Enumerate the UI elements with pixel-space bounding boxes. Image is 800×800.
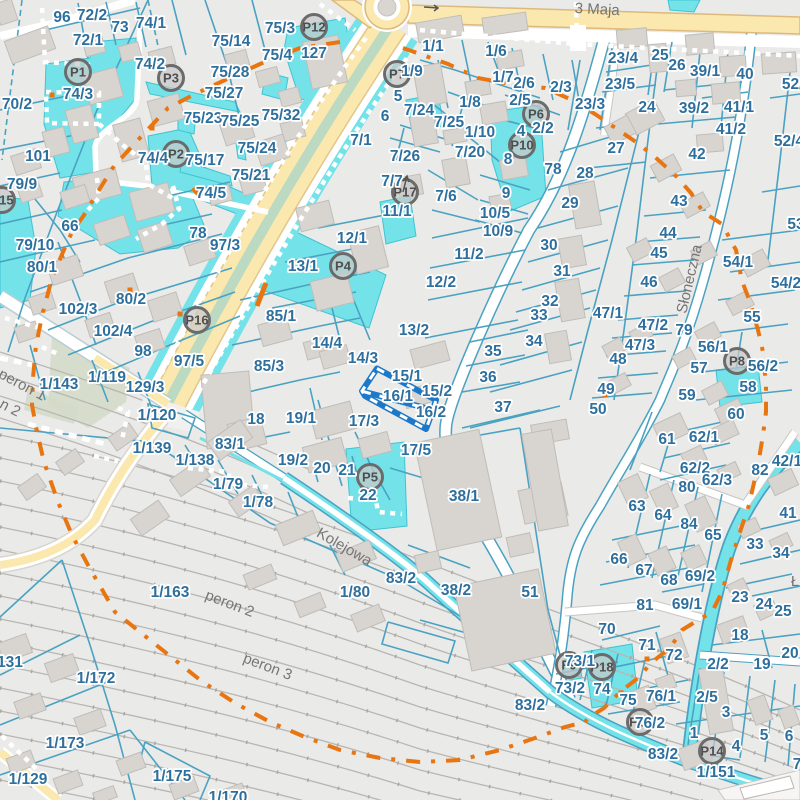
svg-text:12/2: 12/2 bbox=[426, 274, 456, 291]
svg-text:1/139: 1/139 bbox=[133, 440, 172, 457]
svg-text:74/5: 74/5 bbox=[196, 185, 227, 202]
svg-text:40: 40 bbox=[736, 66, 753, 83]
svg-text:34: 34 bbox=[772, 545, 790, 562]
svg-text:76/1: 76/1 bbox=[646, 688, 677, 705]
svg-text:1/78: 1/78 bbox=[243, 494, 274, 511]
svg-text:P4: P4 bbox=[335, 259, 352, 274]
svg-text:69/2: 69/2 bbox=[685, 568, 715, 585]
svg-text:74: 74 bbox=[593, 681, 611, 698]
svg-text:75/4: 75/4 bbox=[262, 47, 293, 64]
svg-text:24: 24 bbox=[638, 99, 656, 116]
svg-text:72/2: 72/2 bbox=[77, 7, 107, 24]
svg-text:1/80: 1/80 bbox=[340, 584, 370, 601]
svg-text:14/4: 14/4 bbox=[312, 335, 343, 352]
svg-text:62/1: 62/1 bbox=[689, 429, 720, 446]
svg-text:27: 27 bbox=[607, 140, 624, 157]
svg-text:10/5: 10/5 bbox=[480, 205, 511, 222]
svg-text:61: 61 bbox=[658, 431, 676, 448]
svg-text:59: 59 bbox=[678, 387, 696, 404]
svg-text:13/1: 13/1 bbox=[288, 258, 319, 275]
svg-text:84: 84 bbox=[680, 516, 698, 533]
svg-text:71: 71 bbox=[638, 637, 656, 654]
svg-text:75/28: 75/28 bbox=[211, 64, 250, 81]
svg-text:7/6: 7/6 bbox=[435, 188, 457, 205]
svg-text:75/23: 75/23 bbox=[184, 110, 223, 127]
svg-text:83/2: 83/2 bbox=[648, 746, 678, 763]
svg-text:7/25: 7/25 bbox=[434, 114, 465, 131]
svg-text:48: 48 bbox=[609, 351, 627, 368]
svg-text:74/2: 74/2 bbox=[135, 56, 165, 73]
svg-text:P15: P15 bbox=[0, 193, 14, 208]
svg-text:9: 9 bbox=[502, 185, 511, 202]
svg-text:3: 3 bbox=[722, 704, 731, 721]
svg-text:2/5: 2/5 bbox=[509, 92, 531, 109]
svg-text:6: 6 bbox=[381, 108, 390, 125]
svg-text:97/3: 97/3 bbox=[210, 237, 241, 254]
svg-text:1/79: 1/79 bbox=[213, 476, 244, 493]
svg-text:38/2: 38/2 bbox=[441, 582, 471, 599]
svg-text:75/14: 75/14 bbox=[212, 33, 251, 50]
svg-text:1/119: 1/119 bbox=[88, 369, 126, 386]
svg-text:42/1: 42/1 bbox=[772, 453, 800, 470]
svg-text:29: 29 bbox=[561, 195, 579, 212]
svg-text:44: 44 bbox=[659, 225, 677, 242]
svg-text:37: 37 bbox=[494, 399, 511, 416]
svg-text:8: 8 bbox=[504, 151, 513, 168]
svg-text:1/8: 1/8 bbox=[459, 94, 481, 111]
svg-text:75/17: 75/17 bbox=[186, 152, 225, 169]
svg-text:63: 63 bbox=[628, 498, 646, 515]
svg-text:P1: P1 bbox=[70, 65, 86, 80]
svg-text:15/1: 15/1 bbox=[392, 368, 423, 385]
svg-text:98: 98 bbox=[134, 343, 152, 360]
svg-text:58: 58 bbox=[739, 379, 757, 396]
svg-text:1/1: 1/1 bbox=[422, 38, 444, 55]
svg-text:62/3: 62/3 bbox=[702, 472, 733, 489]
svg-text:26: 26 bbox=[668, 57, 686, 74]
svg-text:Ł: Ł bbox=[791, 573, 799, 590]
svg-text:2/6: 2/6 bbox=[513, 75, 535, 92]
svg-text:1/129: 1/129 bbox=[9, 771, 48, 788]
svg-text:39/2: 39/2 bbox=[679, 100, 709, 117]
svg-text:12/1: 12/1 bbox=[337, 230, 368, 247]
svg-text:19: 19 bbox=[753, 656, 771, 673]
svg-text:14/3: 14/3 bbox=[348, 350, 379, 367]
svg-text:7/26: 7/26 bbox=[390, 148, 421, 165]
svg-text:66: 66 bbox=[61, 218, 79, 235]
svg-text:24: 24 bbox=[755, 596, 773, 613]
svg-text:1/173: 1/173 bbox=[46, 735, 85, 752]
svg-text:35: 35 bbox=[484, 343, 502, 360]
svg-text:36: 36 bbox=[479, 369, 497, 386]
svg-text:72: 72 bbox=[665, 647, 682, 664]
svg-text:129/3: 129/3 bbox=[126, 379, 165, 396]
svg-text:7/1: 7/1 bbox=[350, 132, 372, 149]
svg-text:7/7: 7/7 bbox=[381, 173, 403, 190]
svg-text:50: 50 bbox=[589, 401, 606, 418]
svg-text:31: 31 bbox=[553, 263, 571, 280]
svg-text:45: 45 bbox=[650, 245, 668, 262]
svg-text:75/25: 75/25 bbox=[221, 113, 260, 130]
svg-text:38/1: 38/1 bbox=[449, 488, 480, 505]
svg-text:10/9: 10/9 bbox=[483, 223, 514, 240]
svg-text:25: 25 bbox=[774, 603, 792, 620]
svg-text:21: 21 bbox=[338, 462, 356, 479]
svg-text:79/9: 79/9 bbox=[7, 176, 38, 193]
svg-text:1/175: 1/175 bbox=[153, 768, 192, 785]
svg-text:P5: P5 bbox=[362, 470, 378, 485]
svg-text:54/2: 54/2 bbox=[771, 275, 800, 292]
svg-text:20: 20 bbox=[781, 645, 798, 662]
svg-text:52/3: 52/3 bbox=[782, 76, 800, 93]
svg-text:3 Maja: 3 Maja bbox=[574, 0, 621, 19]
svg-text:6: 6 bbox=[785, 728, 794, 745]
svg-text:1/10: 1/10 bbox=[465, 124, 495, 141]
svg-text:23/3: 23/3 bbox=[575, 96, 606, 113]
svg-text:46: 46 bbox=[640, 274, 658, 291]
svg-text:28: 28 bbox=[576, 165, 594, 182]
svg-text:23/5: 23/5 bbox=[605, 76, 636, 93]
svg-text:96: 96 bbox=[53, 9, 71, 26]
svg-text:23/4: 23/4 bbox=[608, 50, 639, 67]
svg-text:75/32: 75/32 bbox=[262, 107, 301, 124]
svg-text:56/1: 56/1 bbox=[698, 339, 729, 356]
svg-text:39/1: 39/1 bbox=[690, 63, 721, 80]
svg-text:33: 33 bbox=[746, 536, 764, 553]
svg-text:75/24: 75/24 bbox=[238, 140, 277, 157]
svg-text:2/3: 2/3 bbox=[550, 79, 572, 96]
svg-text:41: 41 bbox=[779, 505, 797, 522]
svg-text:34: 34 bbox=[525, 333, 543, 350]
svg-text:75/3: 75/3 bbox=[265, 20, 296, 37]
svg-text:67: 67 bbox=[635, 562, 652, 579]
svg-text:47/2: 47/2 bbox=[638, 317, 668, 334]
svg-text:5: 5 bbox=[760, 727, 769, 744]
svg-text:47/3: 47/3 bbox=[625, 337, 656, 354]
svg-text:70: 70 bbox=[598, 621, 615, 638]
svg-text:85/1: 85/1 bbox=[266, 308, 297, 325]
svg-text:P3: P3 bbox=[163, 71, 179, 86]
svg-text:55: 55 bbox=[743, 309, 761, 326]
svg-text:18: 18 bbox=[731, 627, 749, 644]
svg-text:75/27: 75/27 bbox=[205, 85, 244, 102]
svg-text:25: 25 bbox=[651, 47, 669, 64]
svg-text:80: 80 bbox=[678, 479, 695, 496]
svg-text:42: 42 bbox=[688, 146, 705, 163]
svg-text:5: 5 bbox=[394, 88, 403, 105]
svg-text:52/4: 52/4 bbox=[774, 133, 800, 150]
svg-text:74/1: 74/1 bbox=[136, 15, 167, 32]
svg-text:101: 101 bbox=[25, 148, 51, 165]
svg-text:51: 51 bbox=[521, 584, 539, 601]
svg-text:131: 131 bbox=[0, 654, 23, 671]
svg-text:102/4: 102/4 bbox=[94, 323, 133, 340]
svg-text:83/2: 83/2 bbox=[515, 697, 545, 714]
svg-text:73/1: 73/1 bbox=[565, 653, 596, 670]
svg-text:65: 65 bbox=[704, 527, 722, 544]
svg-text:85/3: 85/3 bbox=[254, 358, 285, 375]
svg-text:17/5: 17/5 bbox=[401, 442, 432, 459]
svg-text:81: 81 bbox=[636, 597, 654, 614]
svg-text:1/9: 1/9 bbox=[401, 63, 423, 80]
svg-text:2/2: 2/2 bbox=[707, 656, 729, 673]
svg-text:4: 4 bbox=[517, 123, 526, 140]
svg-text:73: 73 bbox=[111, 19, 129, 36]
svg-text:30: 30 bbox=[540, 237, 557, 254]
svg-text:P2: P2 bbox=[168, 147, 184, 162]
svg-text:1: 1 bbox=[690, 725, 699, 742]
svg-text:1/163: 1/163 bbox=[151, 584, 190, 601]
svg-text:23: 23 bbox=[731, 589, 749, 606]
svg-text:78: 78 bbox=[189, 225, 207, 242]
svg-text:20: 20 bbox=[313, 460, 330, 477]
svg-text:22: 22 bbox=[359, 487, 376, 504]
svg-text:7/20: 7/20 bbox=[455, 144, 485, 161]
svg-text:49: 49 bbox=[597, 381, 615, 398]
svg-text:17/3: 17/3 bbox=[349, 413, 380, 430]
svg-text:80/2: 80/2 bbox=[116, 291, 146, 308]
svg-text:82: 82 bbox=[751, 462, 768, 479]
svg-text:75/21: 75/21 bbox=[232, 167, 271, 184]
svg-text:74/4: 74/4 bbox=[138, 150, 169, 167]
svg-text:15/2: 15/2 bbox=[422, 383, 452, 400]
svg-text:1/170: 1/170 bbox=[209, 789, 248, 800]
svg-text:16/1: 16/1 bbox=[383, 388, 414, 405]
svg-text:43: 43 bbox=[670, 193, 688, 210]
svg-text:P12: P12 bbox=[302, 20, 325, 35]
svg-text:74/3: 74/3 bbox=[63, 86, 94, 103]
svg-text:P16: P16 bbox=[185, 313, 208, 328]
svg-text:68: 68 bbox=[660, 572, 678, 589]
svg-text:4: 4 bbox=[732, 738, 741, 755]
svg-text:78: 78 bbox=[544, 161, 562, 178]
svg-text:1/6: 1/6 bbox=[485, 43, 507, 60]
svg-text:102/3: 102/3 bbox=[59, 301, 98, 318]
svg-text:79: 79 bbox=[675, 322, 693, 339]
svg-text:16/2: 16/2 bbox=[416, 404, 446, 421]
svg-text:69/1: 69/1 bbox=[672, 596, 703, 613]
svg-text:83/2: 83/2 bbox=[386, 570, 416, 587]
svg-text:83/1: 83/1 bbox=[215, 436, 246, 453]
svg-text:1/138: 1/138 bbox=[176, 452, 215, 469]
svg-text:56/2: 56/2 bbox=[748, 358, 778, 375]
svg-text:7/24: 7/24 bbox=[404, 102, 435, 119]
svg-text:7: 7 bbox=[793, 756, 800, 773]
svg-text:47/1: 47/1 bbox=[593, 305, 624, 322]
svg-text:60: 60 bbox=[727, 406, 744, 423]
svg-text:54/1: 54/1 bbox=[723, 254, 754, 271]
svg-text:33: 33 bbox=[530, 307, 548, 324]
svg-text:11/1: 11/1 bbox=[382, 203, 412, 220]
svg-text:97/5: 97/5 bbox=[174, 353, 205, 370]
svg-text:72/1: 72/1 bbox=[73, 32, 104, 49]
svg-text:P14: P14 bbox=[700, 744, 724, 759]
svg-text:64: 64 bbox=[654, 507, 672, 524]
svg-text:70/2: 70/2 bbox=[2, 96, 32, 113]
svg-text:18: 18 bbox=[247, 411, 265, 428]
svg-text:73/2: 73/2 bbox=[555, 680, 585, 697]
svg-text:2/2: 2/2 bbox=[532, 120, 554, 137]
svg-text:127: 127 bbox=[301, 45, 327, 62]
svg-text:1/151: 1/151 bbox=[697, 764, 736, 781]
svg-text:53: 53 bbox=[787, 216, 800, 233]
svg-text:P8: P8 bbox=[729, 354, 745, 369]
svg-text:19/1: 19/1 bbox=[286, 410, 317, 427]
svg-text:79/10: 79/10 bbox=[16, 237, 55, 254]
svg-text:41/1: 41/1 bbox=[724, 99, 755, 116]
svg-text:57: 57 bbox=[690, 360, 707, 377]
svg-text:41/2: 41/2 bbox=[716, 121, 746, 138]
svg-text:1/172: 1/172 bbox=[77, 670, 116, 687]
svg-text:1/7: 1/7 bbox=[492, 69, 514, 86]
svg-text:2/5: 2/5 bbox=[696, 689, 718, 706]
svg-text:11/2: 11/2 bbox=[454, 246, 483, 263]
svg-text:76/2: 76/2 bbox=[635, 715, 665, 732]
svg-text:19/2: 19/2 bbox=[278, 452, 308, 469]
svg-text:75: 75 bbox=[619, 692, 637, 709]
svg-text:80/1: 80/1 bbox=[27, 259, 58, 276]
svg-text:66: 66 bbox=[610, 551, 628, 568]
svg-text:1/143: 1/143 bbox=[40, 376, 79, 393]
svg-text:1/120: 1/120 bbox=[138, 407, 177, 424]
svg-text:13/2: 13/2 bbox=[399, 322, 429, 339]
